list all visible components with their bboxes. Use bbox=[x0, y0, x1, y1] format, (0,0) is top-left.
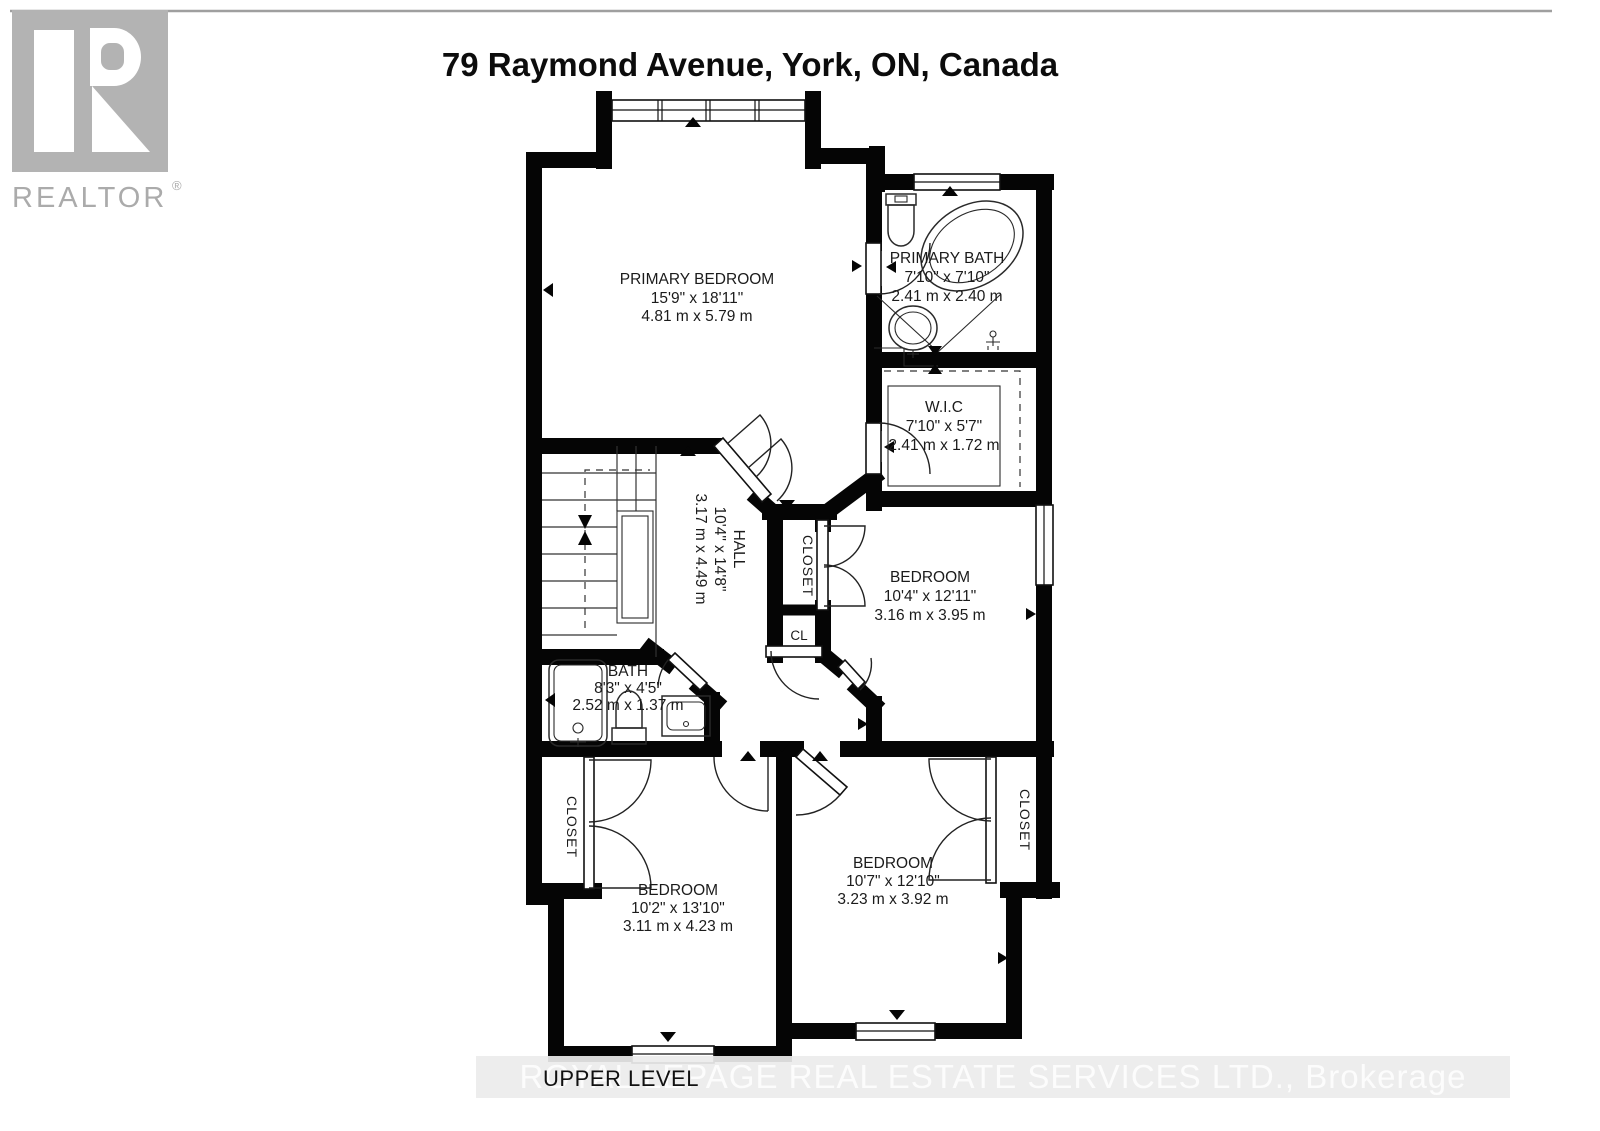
svg-text:7'10" x 7'10": 7'10" x 7'10" bbox=[904, 269, 989, 286]
room-label-bedroom-right: BEDROOM 10'7" x 12'10" 3.23 m x 3.92 m bbox=[837, 855, 948, 908]
svg-text:2.52 m x 1.37 m: 2.52 m x 1.37 m bbox=[572, 697, 683, 714]
floorplan-svg: REALTOR ® 79 Raymond Avenue, York, ON, C… bbox=[0, 0, 1600, 1131]
cl-door bbox=[766, 646, 822, 699]
svg-text:BEDROOM: BEDROOM bbox=[638, 882, 718, 899]
svg-text:BEDROOM: BEDROOM bbox=[890, 569, 970, 586]
left-closet-doors bbox=[584, 757, 651, 889]
closet-label-hall: CLOSET bbox=[800, 535, 816, 597]
level-label: UPPER LEVEL bbox=[543, 1066, 699, 1091]
page-title: 79 Raymond Avenue, York, ON, Canada bbox=[442, 46, 1059, 83]
cl-label: CL bbox=[790, 628, 808, 643]
svg-text:4.81 m x 5.79 m: 4.81 m x 5.79 m bbox=[641, 308, 752, 325]
svg-text:3.11 m x 4.23 m: 3.11 m x 4.23 m bbox=[623, 918, 733, 935]
right-bedroom-window bbox=[856, 1023, 935, 1040]
svg-text:7'10" x 5'7": 7'10" x 5'7" bbox=[906, 418, 982, 435]
svg-text:BATH: BATH bbox=[608, 663, 648, 680]
svg-text:PRIMARY BATH: PRIMARY BATH bbox=[890, 250, 1005, 267]
realtor-wordmark: REALTOR ® bbox=[12, 178, 182, 214]
faucet-icon bbox=[986, 331, 1000, 350]
closet-label-left: CLOSET bbox=[564, 796, 580, 858]
svg-text:3.17 m x 4.49 m: 3.17 m x 4.49 m bbox=[692, 493, 709, 604]
room-label-primary-bath: PRIMARY BATH 7'10" x 7'10" 2.41 m x 2.40… bbox=[890, 250, 1005, 305]
room-label-bedroom-middle: BEDROOM 10'4" x 12'11" 3.16 m x 3.95 m bbox=[874, 569, 985, 624]
svg-text:3.23 m x 3.92 m: 3.23 m x 3.92 m bbox=[837, 891, 948, 908]
wall-layer bbox=[534, 99, 1052, 1054]
primary-bath-window bbox=[914, 174, 1000, 190]
svg-text:2.41 m x 2.40 m: 2.41 m x 2.40 m bbox=[891, 288, 1002, 305]
room-label-wic: W.I.C 7'10" x 5'7" 2.41 m x 1.72 m bbox=[888, 399, 999, 454]
svg-text:PRIMARY BEDROOM: PRIMARY BEDROOM bbox=[620, 271, 774, 288]
svg-text:10'2" x 13'10": 10'2" x 13'10" bbox=[631, 900, 725, 917]
primary-toilet bbox=[886, 194, 916, 246]
stairs bbox=[542, 446, 656, 657]
primary-bedroom-door bbox=[714, 415, 792, 502]
floorplan-page: REALTOR ® 79 Raymond Avenue, York, ON, C… bbox=[0, 0, 1600, 1131]
middle-bedroom-window bbox=[1036, 505, 1053, 585]
svg-text:BEDROOM: BEDROOM bbox=[853, 855, 933, 872]
middle-bedroom-door bbox=[838, 658, 871, 690]
svg-text:2.41 m x 1.72 m: 2.41 m x 1.72 m bbox=[888, 437, 999, 454]
room-label-bedroom-left: BEDROOM 10'2" x 13'10" 3.11 m x 4.23 m bbox=[623, 882, 733, 935]
svg-text:3.16 m x 3.95 m: 3.16 m x 3.95 m bbox=[874, 607, 985, 624]
room-label-primary-bedroom: PRIMARY BEDROOM 15'9" x 18'11" 4.81 m x … bbox=[620, 271, 774, 325]
svg-text:10'4" x 14'8": 10'4" x 14'8" bbox=[711, 506, 728, 591]
brand-text: REALTOR bbox=[12, 182, 167, 214]
left-bedroom-door bbox=[714, 757, 768, 811]
closet-label-right: CLOSET bbox=[1017, 789, 1033, 851]
svg-text:10'4" x 12'11": 10'4" x 12'11" bbox=[884, 588, 976, 605]
right-closet-doors bbox=[929, 757, 996, 883]
hall-closet-doors bbox=[817, 520, 865, 610]
svg-text:15'9" x 18'11": 15'9" x 18'11" bbox=[651, 290, 743, 307]
registered-mark: ® bbox=[172, 178, 182, 193]
svg-text:10'7" x 12'10": 10'7" x 12'10" bbox=[846, 873, 940, 890]
realtor-logo-icon bbox=[12, 10, 168, 172]
svg-text:W.I.C: W.I.C bbox=[925, 399, 963, 416]
svg-text:8'3" x 4'5": 8'3" x 4'5" bbox=[594, 680, 662, 697]
bay-window bbox=[612, 100, 805, 121]
svg-text:HALL: HALL bbox=[730, 530, 747, 569]
room-label-hall: HALL 10'4" x 14'8" 3.17 m x 4.49 m bbox=[692, 493, 747, 604]
